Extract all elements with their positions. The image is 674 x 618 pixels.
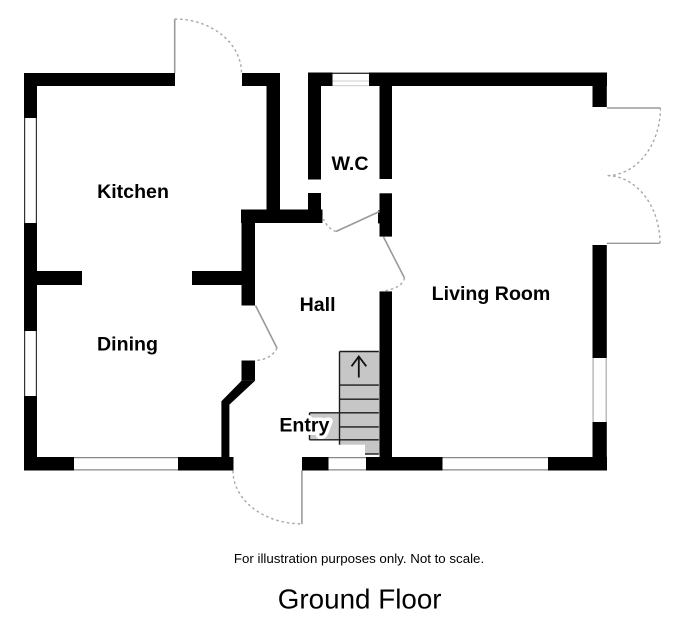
svg-text:Ground Floor: Ground Floor (278, 584, 442, 615)
svg-text:Dining: Dining (97, 334, 158, 356)
svg-text:Living Room: Living Room (432, 283, 551, 305)
svg-text:Kitchen: Kitchen (97, 181, 169, 203)
svg-text:W.C: W.C (331, 153, 368, 175)
svg-text:Hall: Hall (300, 294, 336, 316)
svg-text:For illustration purposes only: For illustration purposes only. Not to s… (234, 551, 484, 566)
svg-text:Entry: Entry (279, 414, 329, 436)
